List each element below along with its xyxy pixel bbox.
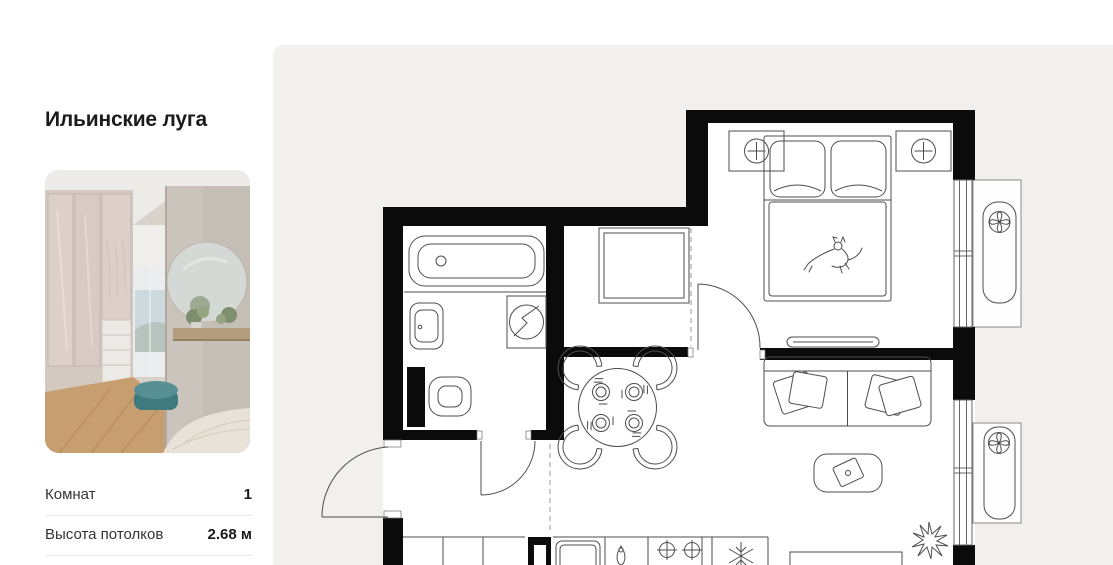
rooms-value: 1 (244, 486, 252, 503)
detail-row-ceiling-height: Высота потолков 2.68 м (45, 516, 252, 556)
ceiling-height-label: Высота потолков (45, 526, 163, 543)
page-title: Ильинские луга (45, 108, 207, 132)
sidebar: Ильинские луга (0, 0, 273, 565)
ceiling-height-value: 2.68 м (208, 526, 252, 543)
window-bedroom (954, 180, 972, 327)
entrance-door (322, 447, 388, 517)
rooms-label: Комнат (45, 486, 96, 503)
floor-plan-panel (273, 45, 1113, 565)
detail-row-rooms: Комнат 1 (45, 476, 252, 516)
vent-duct (528, 537, 551, 565)
window-living (954, 400, 972, 545)
apartment-photo[interactable] (45, 170, 250, 453)
detail-row-total-area: Общая площадь 20.4 м² (45, 556, 252, 565)
property-details: Комнат 1 Высота потолков 2.68 м Общая пл… (45, 476, 252, 565)
apartment-photo-art (45, 170, 250, 453)
floor-plan (273, 45, 1113, 565)
